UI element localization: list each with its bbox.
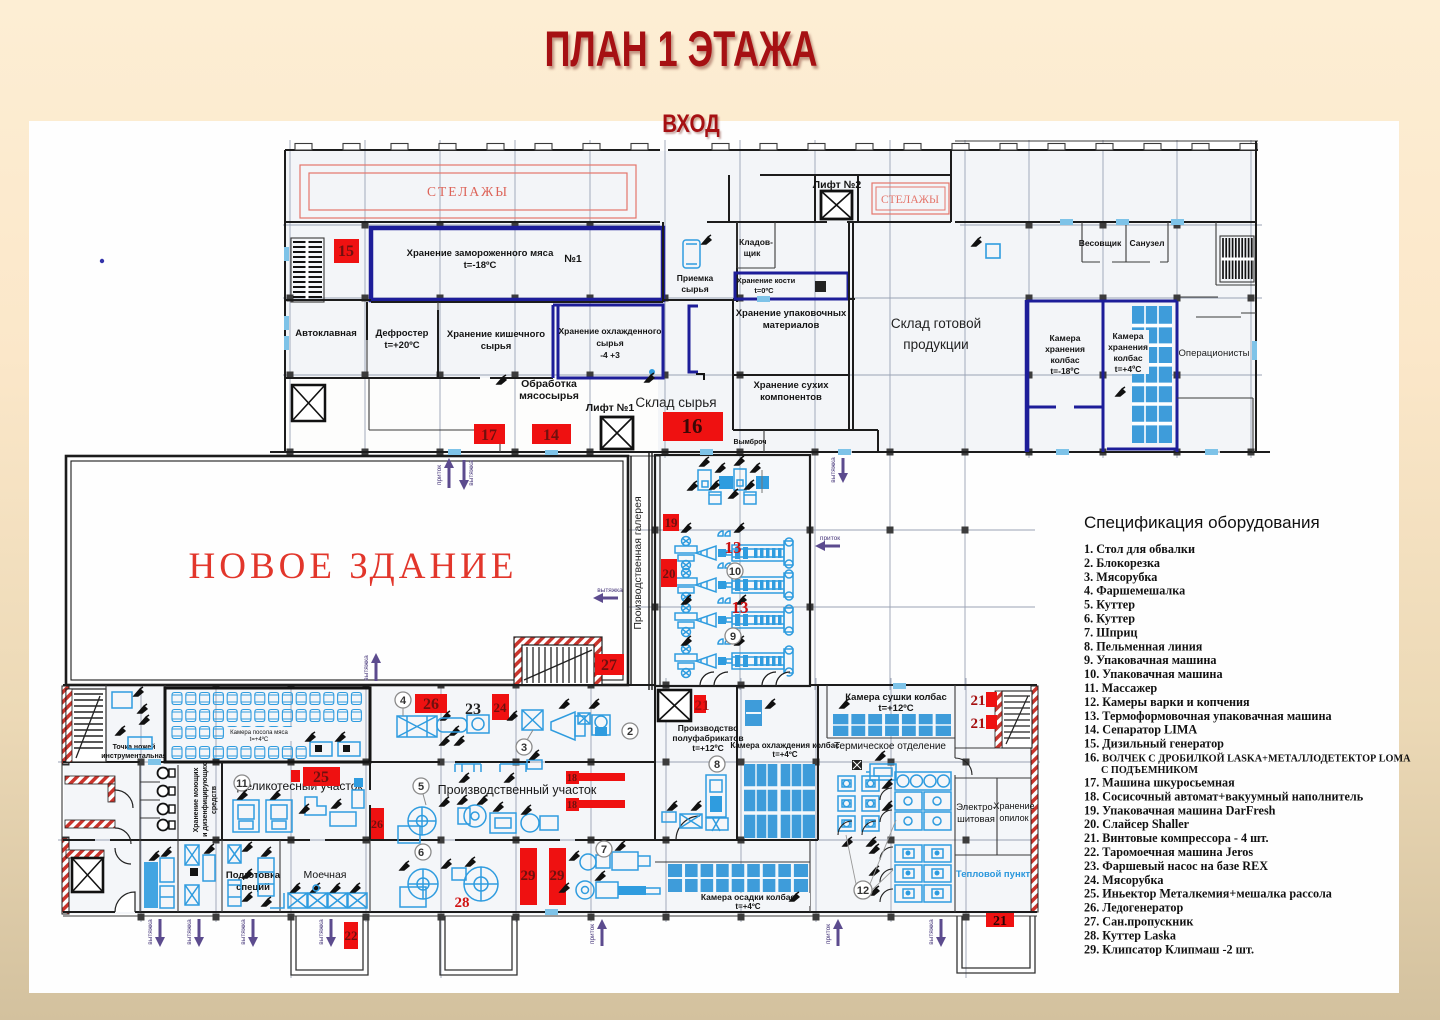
- svg-text:хранения: хранения: [1108, 342, 1148, 352]
- svg-text:Камера: Камера: [1050, 333, 1081, 343]
- svg-text:Весовщик: Весовщик: [1079, 238, 1122, 248]
- svg-text:средств: средств: [211, 785, 218, 814]
- svg-text:1. Стол для обвалки: 1. Стол для обвалки: [1084, 542, 1195, 556]
- svg-text:3. Мясорубка: 3. Мясорубка: [1084, 570, 1157, 584]
- svg-text:10. Упаковачная машина: 10. Упаковачная машина: [1084, 667, 1223, 681]
- svg-text:6: 6: [418, 847, 424, 859]
- svg-text:Спецификация оборудования: Спецификация оборудования: [1084, 513, 1320, 532]
- svg-text:21: 21: [993, 914, 1007, 929]
- svg-text:29: 29: [550, 868, 565, 884]
- svg-text:29: 29: [521, 868, 536, 884]
- svg-text:СТЕЛАЖЫ: СТЕЛАЖЫ: [881, 194, 939, 206]
- svg-text:25: 25: [313, 769, 329, 786]
- svg-text:3: 3: [521, 742, 527, 754]
- svg-text:2: 2: [627, 726, 633, 738]
- svg-text:5. Куттер: 5. Куттер: [1084, 598, 1135, 612]
- svg-text:8: 8: [714, 759, 720, 771]
- svg-text:Деликотесный участок: Деликотесный участок: [237, 779, 363, 793]
- svg-text:приток: приток: [825, 924, 832, 944]
- svg-text:Камера сушки колбас: Камера сушки колбас: [845, 692, 947, 703]
- svg-text:колбас: колбас: [1113, 353, 1142, 363]
- svg-text:9. Упаковачная машина: 9. Упаковачная машина: [1084, 653, 1216, 667]
- svg-text:16: 16: [682, 414, 703, 438]
- svg-text:Производственная галерея: Производственная галерея: [632, 496, 644, 629]
- svg-text:13: 13: [732, 598, 749, 617]
- svg-text:инструментальная: инструментальная: [101, 753, 166, 760]
- svg-text:t=+4ºC: t=+4ºC: [1115, 364, 1142, 374]
- svg-text:приток: приток: [589, 924, 596, 944]
- svg-text:16. ВОЛЧЕК С ДРОБИЛКОЙ LASKA+М: 16. ВОЛЧЕК С ДРОБИЛКОЙ LASKA+МЕТАЛЛОДЕТЕ…: [1084, 751, 1411, 765]
- svg-text:сырья: сырья: [681, 284, 708, 294]
- svg-text:t=+4ºC: t=+4ºC: [735, 902, 760, 911]
- svg-text:21. Винтовые компрессора - 4 ш: 21. Винтовые компрессора - 4 шт.: [1084, 831, 1269, 845]
- svg-text:t=+4ºC: t=+4ºC: [772, 750, 797, 759]
- svg-text:t=-18ºC: t=-18ºC: [464, 260, 497, 271]
- svg-text:вытяжка: вытяжка: [830, 457, 837, 483]
- svg-text:Производственный участок: Производственный участок: [438, 783, 597, 797]
- svg-text:Хранение кишечного: Хранение кишечного: [447, 329, 545, 340]
- svg-text:11. Массажер: 11. Массажер: [1084, 681, 1157, 695]
- svg-text:t=-18ºC: t=-18ºC: [1050, 366, 1079, 376]
- svg-text:вытяжка: вытяжка: [240, 919, 247, 945]
- svg-text:Тепловой пункт: Тепловой пункт: [956, 869, 1031, 880]
- svg-text:20. Слайсер Shaller: 20. Слайсер Shaller: [1084, 817, 1190, 831]
- svg-text:-4 +3: -4 +3: [600, 350, 620, 360]
- svg-text:щик: щик: [744, 248, 761, 258]
- svg-text:С ПОДЪЕМНИКОМ: С ПОДЪЕМНИКОМ: [1101, 765, 1198, 776]
- svg-text:5: 5: [418, 781, 424, 793]
- svg-text:25. Иньектор Металкемия+мешалк: 25. Иньектор Металкемия+мешалка рассола: [1084, 887, 1332, 901]
- svg-text:Кладов-: Кладов-: [739, 237, 773, 247]
- svg-text:Моечная: Моечная: [304, 869, 347, 881]
- svg-text:НОВОЕ ЗДАНИЕ: НОВОЕ ЗДАНИЕ: [189, 546, 518, 587]
- svg-text:27: 27: [601, 657, 617, 674]
- svg-text:t=0ºC: t=0ºC: [754, 286, 774, 295]
- svg-text:Обработка: Обработка: [521, 378, 577, 390]
- svg-text:4: 4: [400, 695, 407, 707]
- svg-text:20: 20: [663, 566, 676, 581]
- svg-text:вытяжка: вытяжка: [468, 460, 475, 486]
- svg-text:t=+12ºC: t=+12ºC: [878, 703, 913, 714]
- svg-text:Термическое отделение: Термическое отделение: [834, 741, 946, 752]
- svg-text:вытяжка: вытяжка: [318, 919, 325, 945]
- svg-text:Электро-: Электро-: [956, 802, 996, 813]
- svg-text:Склад готовой: Склад готовой: [891, 316, 981, 331]
- svg-text:9: 9: [730, 631, 736, 643]
- svg-text:26: 26: [371, 817, 383, 831]
- svg-text:приток: приток: [436, 465, 443, 485]
- svg-text:вытяжка: вытяжка: [147, 919, 154, 945]
- svg-text:Хранение упаковочных: Хранение упаковочных: [736, 308, 847, 319]
- svg-text:18: 18: [567, 800, 577, 811]
- svg-text:2. Блокорезка: 2. Блокорезка: [1084, 556, 1160, 570]
- svg-text:12. Камеры варки и копчения: 12. Камеры варки и копчения: [1084, 695, 1250, 709]
- svg-text:24: 24: [494, 700, 508, 715]
- svg-text:Хранение моющих: Хранение моющих: [193, 768, 200, 833]
- svg-text:11: 11: [236, 778, 248, 790]
- svg-text:Хранение: Хранение: [994, 801, 1035, 811]
- svg-text:вытяжка: вытяжка: [186, 919, 193, 945]
- svg-text:19: 19: [665, 515, 679, 530]
- svg-text:13: 13: [725, 538, 742, 557]
- svg-text:приток: приток: [820, 535, 840, 542]
- svg-text:продукции: продукции: [903, 337, 968, 352]
- svg-text:опилок: опилок: [999, 813, 1028, 823]
- svg-text:t=+4ºC: t=+4ºC: [250, 736, 269, 743]
- svg-text:Операционисты: Операционисты: [1179, 348, 1250, 359]
- svg-text:колбас: колбас: [1050, 355, 1079, 365]
- svg-text:18. Сосисочный автомат+вакуумн: 18. Сосисочный автомат+вакуумный наполни…: [1084, 789, 1364, 803]
- svg-text:вытяжка: вытяжка: [928, 919, 935, 945]
- svg-text:26. Ледогенератор: 26. Ледогенератор: [1084, 901, 1183, 915]
- svg-text:Камера охлаждения колбас: Камера охлаждения колбас: [730, 741, 840, 750]
- svg-text:21: 21: [971, 716, 986, 732]
- svg-text:Хранение кости: Хранение кости: [737, 276, 796, 285]
- svg-text:7: 7: [601, 844, 607, 856]
- svg-text:17: 17: [481, 427, 497, 444]
- svg-text:Дефростер: Дефростер: [376, 328, 429, 339]
- svg-text:шитовая: шитовая: [957, 814, 995, 825]
- svg-text:Вымброч: Вымброч: [734, 438, 767, 446]
- svg-text:8. Пельменная линия: 8. Пельменная линия: [1084, 639, 1203, 653]
- svg-text:12: 12: [857, 885, 869, 897]
- svg-text:Лифт №1: Лифт №1: [586, 402, 635, 414]
- svg-text:Точка ножей: Точка ножей: [113, 743, 156, 751]
- svg-text:10: 10: [729, 566, 741, 578]
- svg-text:Хранение сухих: Хранение сухих: [753, 380, 829, 391]
- svg-text:28: 28: [455, 895, 470, 911]
- svg-text:Камера: Камера: [1113, 331, 1144, 341]
- svg-text:23. Фаршевый насос на базе REX: 23. Фаршевый насос на базе REX: [1084, 859, 1268, 873]
- svg-text:СТЕЛАЖЫ: СТЕЛАЖЫ: [427, 184, 509, 199]
- svg-text:материалов: материалов: [763, 320, 820, 331]
- svg-text:13. Термоформовочная упаковачн: 13. Термоформовочная упаковачная машина: [1084, 709, 1332, 723]
- svg-text:Санузел: Санузел: [1130, 238, 1165, 248]
- svg-text:Камера посола мяса: Камера посола мяса: [230, 730, 288, 736]
- svg-text:4. Фаршемешалка: 4. Фаршемешалка: [1084, 584, 1185, 598]
- svg-text:7. Шприц: 7. Шприц: [1084, 625, 1137, 639]
- svg-text:вытяжка: вытяжка: [363, 655, 370, 681]
- svg-text:27. Сан.пропускник: 27. Сан.пропускник: [1084, 915, 1193, 929]
- svg-text:6. Куттер: 6. Куттер: [1084, 612, 1135, 626]
- svg-text:Лифт №2: Лифт №2: [813, 179, 862, 191]
- svg-text:Хранение охлажденного: Хранение охлажденного: [559, 326, 662, 336]
- svg-text:хранения: хранения: [1045, 344, 1085, 354]
- svg-text:22: 22: [345, 928, 358, 943]
- svg-text:21: 21: [695, 698, 710, 714]
- svg-text:26: 26: [423, 696, 439, 713]
- svg-text:15: 15: [338, 243, 354, 260]
- svg-text:28. Куттер Laska: 28. Куттер Laska: [1084, 928, 1176, 942]
- svg-text:17. Машина шкуросьемная: 17. Машина шкуросьемная: [1084, 776, 1235, 790]
- svg-text:сырья: сырья: [596, 338, 623, 348]
- svg-text:сырья: сырья: [481, 341, 512, 352]
- svg-text:22. Таромоечная машина Jeros: 22. Таромоечная машина Jeros: [1084, 845, 1253, 859]
- svg-text:Хранение замороженного мяса: Хранение замороженного мяса: [407, 248, 554, 259]
- svg-text:вытяжка: вытяжка: [597, 587, 623, 594]
- svg-text:t=+20ºC: t=+20ºC: [384, 340, 419, 351]
- svg-text:№1: №1: [564, 253, 582, 265]
- svg-text:Приемка: Приемка: [677, 273, 714, 283]
- svg-text:Склад сырья: Склад сырья: [635, 395, 716, 410]
- svg-text:21: 21: [971, 693, 986, 709]
- svg-text:18: 18: [567, 773, 577, 784]
- svg-text:Камера осадки колбас: Камера осадки колбас: [701, 892, 796, 902]
- svg-text:Автоклавная: Автоклавная: [295, 328, 357, 339]
- svg-text:14: 14: [543, 427, 559, 444]
- svg-text:29. Клипсатор Клипмаш -2 шт.: 29. Клипсатор Клипмаш -2 шт.: [1084, 942, 1254, 956]
- svg-text:и дизенфицирующих: и дизенфицирующих: [202, 763, 209, 837]
- svg-text:мясосырья: мясосырья: [519, 390, 579, 402]
- svg-text:15. Дизильный генератор: 15. Дизильный генератор: [1084, 737, 1224, 751]
- svg-text:14. Сепаратор LIMA: 14. Сепаратор LIMA: [1084, 723, 1197, 737]
- svg-text:Производство: Производство: [678, 723, 739, 733]
- svg-text:компонентов: компонентов: [760, 392, 822, 403]
- svg-text:19. Упаковачная машина DarFres: 19. Упаковачная машина DarFresh: [1084, 803, 1276, 817]
- svg-text:24. Мясорубка: 24. Мясорубка: [1084, 873, 1163, 887]
- svg-text:t=+12ºC: t=+12ºC: [692, 743, 723, 753]
